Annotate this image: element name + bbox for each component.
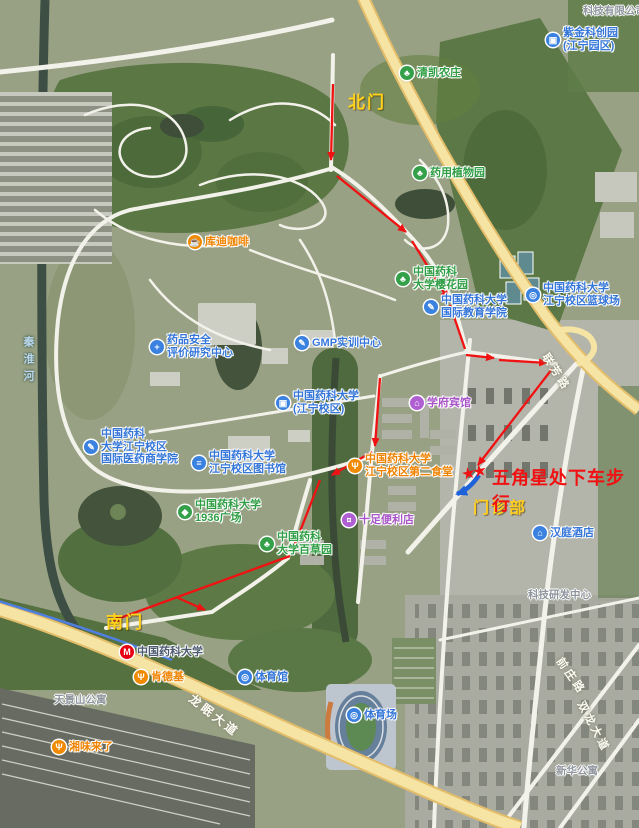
fork-icon: Ψ xyxy=(134,670,148,684)
shopping-bag-icon: ¤ xyxy=(342,513,356,527)
poi-1936-plaza: ◆ 中国药科大学 1936广场 xyxy=(178,499,261,524)
poi-hotel-east: ⌂ 汉庭酒店 xyxy=(533,526,594,540)
poi-cherry-garden: ♣ 中国药科 大学樱花园 xyxy=(396,266,468,291)
sports-icon: ◎ xyxy=(347,708,361,722)
poi-science-park: ▣ 紫金科创园 (江宁园区) xyxy=(546,27,618,52)
river-label: 秦淮河 xyxy=(20,336,36,387)
poi-gmp-training-center: ✎ GMP实训中心 xyxy=(295,336,381,350)
poi-second-canteen: Ψ 中国药科大学 江宁校区第二食堂 xyxy=(348,453,453,478)
area-label-xinhua-apartments: 新华公寓 xyxy=(556,763,598,778)
poi-botanical-garden: ♣ 药用植物园 xyxy=(413,166,485,180)
poi-coffee-shop: ☕ 库迪咖啡 xyxy=(188,235,249,249)
poi-intl-pharma-business-school: ✎ 中国药科 大学江宁校区 国际医药商学院 xyxy=(84,428,178,466)
poi-intl-education-college: ✎ 中国药科大学 国际教育学院 xyxy=(424,294,507,319)
leaf-icon: ♣ xyxy=(260,537,274,551)
basketball-icon: ◎ xyxy=(526,288,540,302)
fork-icon: Ψ xyxy=(52,740,66,754)
bed-icon: ⌂ xyxy=(533,526,547,540)
poi-library: ≡ 中国药科大学 江宁校区图书馆 xyxy=(192,450,286,475)
annotation-north-gate: 北门 xyxy=(348,88,386,113)
poi-bus-stop-cpu: ▣ 中国药科大学 (江宁校区) xyxy=(276,390,359,415)
annotation-get-off-instruction: 五角星处下车步行 xyxy=(492,464,639,516)
sports-icon: ◎ xyxy=(238,670,252,684)
bed-icon: ⌂ xyxy=(410,396,424,410)
leaf-icon: ♣ xyxy=(396,272,410,286)
northwest-residential xyxy=(0,92,112,264)
poi-campus-hotel: ⌂ 学府宾馆 xyxy=(410,396,471,410)
plus-icon: + xyxy=(150,340,164,354)
school-icon: ✎ xyxy=(84,440,98,454)
fork-icon: Ψ xyxy=(348,459,362,473)
poi-stadium: ◎ 体育场 xyxy=(347,708,397,722)
leaf-icon: ♣ xyxy=(400,66,414,80)
vegetable-field xyxy=(392,638,436,704)
poi-drug-safety-center: + 药品安全 评价研究中心 xyxy=(150,334,233,359)
annotation-south-gate: 南门 xyxy=(106,608,144,633)
leaf-icon: ♣ xyxy=(413,166,427,180)
annotated-campus-satellite-map: ♣ 清凯农庄 ♣ 药用植物园 ☕ 库迪咖啡 ♣ 中国药科 大学樱花园 ✎ 中国药… xyxy=(0,0,639,828)
poi-basketball-court: ◎ 中国药科大学 江宁校区篮球场 xyxy=(526,282,620,307)
poi-gymnasium: ◎ 体育馆 xyxy=(238,670,288,684)
area-label-tech-center: 科技研发中心 xyxy=(528,587,591,602)
area-label-residential-southwest: 天景山公寓 xyxy=(54,692,107,707)
coffee-icon: ☕ xyxy=(188,235,202,249)
area-label-company: 科技有限公司 xyxy=(583,3,639,18)
book-icon: ≡ xyxy=(192,456,206,470)
poi-farm: ♣ 清凯农庄 xyxy=(400,66,461,80)
school-icon: ✎ xyxy=(295,336,309,350)
monument-icon: ◆ xyxy=(178,505,192,519)
poi-kfc: Ψ 肯德基 xyxy=(134,670,184,684)
poi-convenience-store: ¤ 十足便利店 xyxy=(342,513,414,527)
poi-metro-station-cpu: M 中国药科大学 xyxy=(120,645,203,659)
bus-icon: ▣ xyxy=(276,396,290,410)
school-icon: ✎ xyxy=(424,300,438,314)
metro-icon: M xyxy=(120,645,134,659)
poi-herb-garden: ♣ 中国药科 大学百草园 xyxy=(260,531,332,556)
office-building-icon: ▣ xyxy=(546,33,560,47)
poi-restaurant-southwest: Ψ 湘味来了 xyxy=(52,740,113,754)
